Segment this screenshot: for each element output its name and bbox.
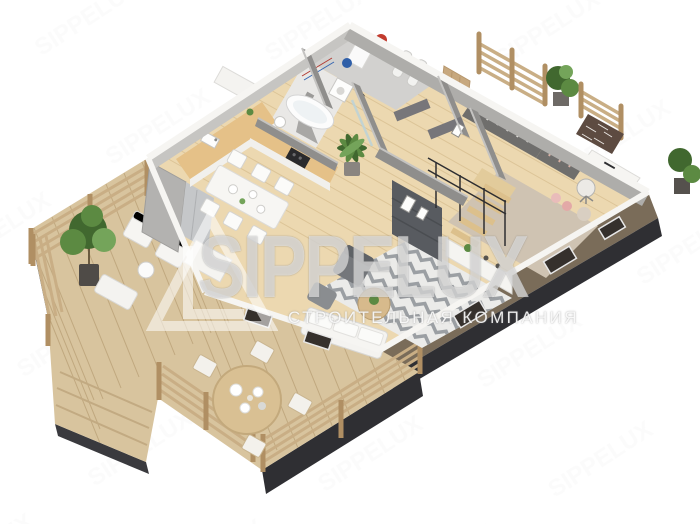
plate <box>240 403 250 413</box>
plate <box>230 384 242 396</box>
dish <box>258 402 266 410</box>
washbasin <box>275 117 286 128</box>
floor-cushion <box>577 207 591 221</box>
desk-chair <box>577 179 595 197</box>
tree-pot <box>79 264 99 286</box>
round-table <box>213 366 281 434</box>
floor-pillow <box>562 201 572 211</box>
floorplan-image: SIPPELUX <box>0 0 700 524</box>
plate <box>253 387 263 397</box>
palm-pot <box>344 162 360 176</box>
floor-plan-render: SIPPELUX <box>0 0 700 524</box>
dish <box>247 395 253 401</box>
lounge-coffee-table <box>138 262 154 278</box>
floor-pillow <box>551 193 561 203</box>
console-plant <box>464 244 472 252</box>
blue-tank <box>342 58 352 68</box>
table-plant <box>369 295 379 305</box>
counter-plant <box>247 109 254 116</box>
